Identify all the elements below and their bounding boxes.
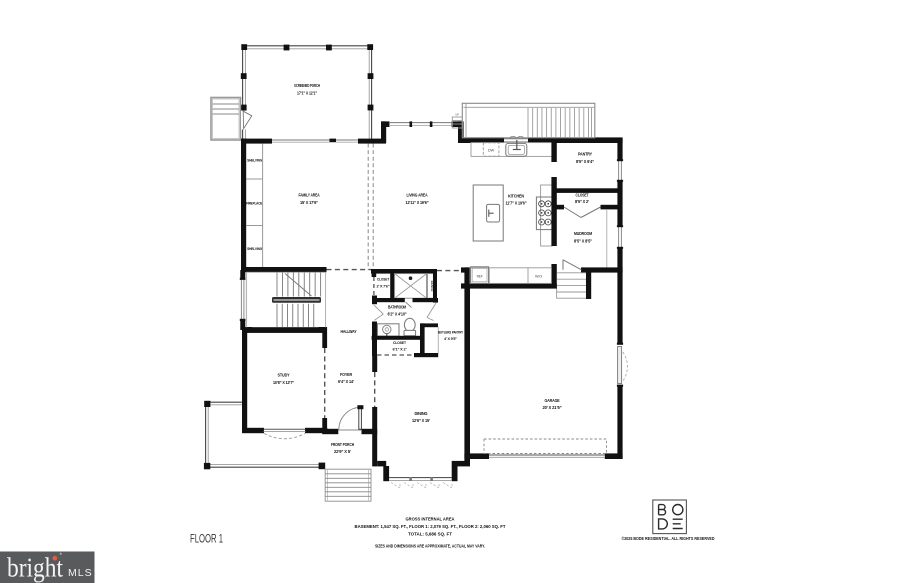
svg-text:DINING: DINING — [415, 411, 428, 416]
svg-text:SIZES AND DIMENSIONS ARE APPRO: SIZES AND DIMENSIONS ARE APPROXIMATE, AC… — [375, 544, 485, 550]
svg-text:KITCHEN: KITCHEN — [508, 194, 525, 199]
svg-text:HALLWAY: HALLWAY — [341, 329, 357, 334]
svg-text:8’5” X 6’4”: 8’5” X 6’4” — [576, 159, 594, 164]
svg-text:MLS: MLS — [68, 567, 93, 579]
svg-text:6’1” X 2’: 6’1” X 2’ — [393, 347, 407, 352]
svg-text:MUDROOM: MUDROOM — [574, 231, 592, 236]
svg-text:17’1” X 12’1”: 17’1” X 12’1” — [297, 91, 317, 96]
svg-text:©2025 BODE RESIDENTIAL. ALL RI: ©2025 BODE RESIDENTIAL. ALL RIGHTS RESER… — [622, 536, 715, 541]
svg-text:SHELVING: SHELVING — [247, 247, 262, 251]
svg-text:LIVING AREA: LIVING AREA — [407, 193, 429, 198]
svg-text:BATHROOM: BATHROOM — [388, 305, 407, 310]
svg-text:CLOSET: CLOSET — [393, 340, 407, 345]
svg-text:20’ X 21’5”: 20’ X 21’5” — [543, 405, 562, 410]
svg-text:22’9” X 5’: 22’9” X 5’ — [334, 449, 351, 454]
svg-text:SHELVING: SHELVING — [247, 159, 262, 163]
svg-text:W.O: W.O — [535, 275, 543, 279]
svg-text:12’11” X 19’6”: 12’11” X 19’6” — [406, 200, 429, 205]
svg-text:10’8” X 13’7”: 10’8” X 13’7” — [273, 380, 294, 385]
svg-text:FLOOR 1: FLOOR 1 — [190, 534, 223, 546]
svg-text:8’5” X 8’5”: 8’5” X 8’5” — [574, 238, 592, 243]
svg-text:BASEMENT: 1,547 SQ. FT., FLOOR: BASEMENT: 1,547 SQ. FT., FLOOR 1: 2,079 … — [355, 524, 506, 530]
svg-text:REF: REF — [477, 275, 483, 279]
svg-text:STUDY: STUDY — [278, 373, 290, 378]
svg-text:8’5” X 2’: 8’5” X 2’ — [575, 199, 589, 204]
svg-text:FIREPLACE: FIREPLACE — [246, 202, 263, 206]
svg-text:TOTAL: 5,686 SQ. FT: TOTAL: 5,686 SQ. FT — [408, 532, 452, 538]
svg-text:2’ X 7’6”: 2’ X 7’6” — [377, 284, 390, 288]
svg-text:4’ X 9’5”: 4’ X 9’5” — [444, 337, 457, 341]
svg-text:FOYER: FOYER — [340, 372, 353, 377]
svg-text:CLOSET: CLOSET — [377, 278, 390, 282]
svg-text:CLOSET: CLOSET — [576, 193, 590, 198]
svg-text:GROSS INTERNAL AREA: GROSS INTERNAL AREA — [406, 517, 455, 523]
svg-text:BUTLERS PANTRY: BUTLERS PANTRY — [438, 331, 464, 335]
svg-text:UP: UP — [455, 113, 459, 117]
svg-text:FRONT PORCH: FRONT PORCH — [331, 442, 355, 447]
svg-text:FAMILY AREA: FAMILY AREA — [299, 193, 321, 198]
svg-text:11’7” X 19’6”: 11’7” X 19’6” — [506, 201, 527, 206]
svg-text:DW: DW — [488, 149, 495, 153]
svg-text:SCREENED PORCH: SCREENED PORCH — [294, 83, 321, 88]
svg-text:15’ X 17’6”: 15’ X 17’6” — [300, 200, 318, 205]
svg-text:PANTRY: PANTRY — [578, 152, 592, 157]
svg-text:6’2” X 4’10”: 6’2” X 4’10” — [388, 312, 407, 317]
svg-text:6’4” X 14’: 6’4” X 14’ — [338, 379, 354, 384]
svg-text:12’6” X 15’: 12’6” X 15’ — [412, 418, 430, 423]
svg-text:GARAGE: GARAGE — [545, 398, 560, 403]
